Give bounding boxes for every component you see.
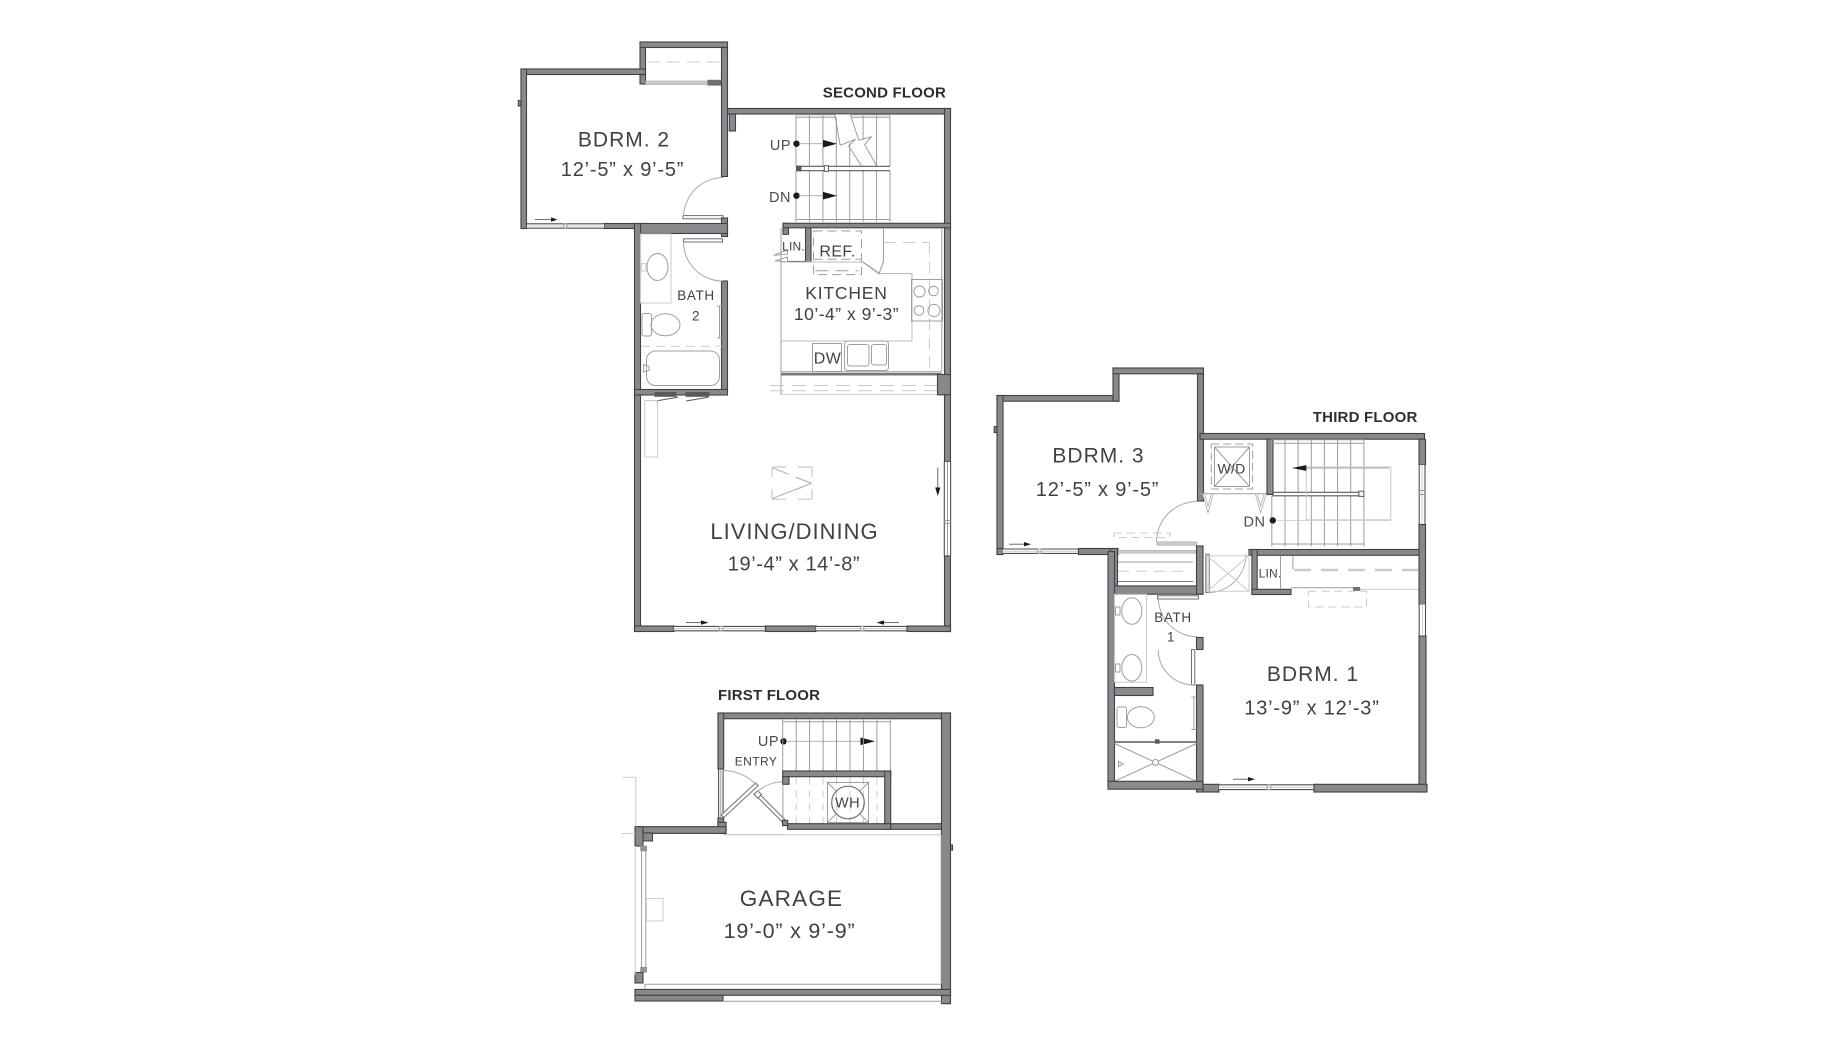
svg-text:10’-4” x 9’-3”: 10’-4” x 9’-3”	[794, 304, 899, 324]
svg-text:UP: UP	[758, 734, 779, 750]
svg-text:GARAGE: GARAGE	[740, 886, 843, 911]
svg-text:SECOND FLOOR: SECOND FLOOR	[823, 85, 946, 102]
svg-text:12’-5” x 9’-5”: 12’-5” x 9’-5”	[1036, 479, 1159, 501]
svg-text:WH: WH	[835, 796, 860, 812]
svg-text:19’-0” x 9’-9”: 19’-0” x 9’-9”	[724, 919, 856, 943]
svg-text:19’-4” x 14’-8”: 19’-4” x 14’-8”	[728, 554, 860, 576]
svg-text:BATH: BATH	[677, 288, 714, 303]
svg-text:BATH: BATH	[1154, 610, 1191, 625]
svg-text:2: 2	[692, 309, 700, 324]
svg-text:DW: DW	[814, 351, 842, 368]
svg-text:REF.: REF.	[819, 244, 855, 261]
svg-text:DN: DN	[769, 190, 791, 206]
svg-text:BDRM. 3: BDRM. 3	[1052, 445, 1144, 468]
svg-text:1: 1	[1167, 630, 1175, 645]
svg-text:THIRD FLOOR: THIRD FLOOR	[1313, 409, 1418, 426]
svg-text:LIVING/DINING: LIVING/DINING	[710, 519, 878, 544]
svg-text:KITCHEN: KITCHEN	[805, 283, 887, 303]
svg-text:LIN.: LIN.	[782, 240, 805, 254]
svg-text:UP: UP	[770, 138, 791, 154]
svg-text:DN: DN	[1244, 515, 1266, 531]
svg-text:FIRST FLOOR: FIRST FLOOR	[718, 687, 820, 704]
svg-text:BDRM. 2: BDRM. 2	[578, 129, 670, 152]
svg-text:12’-5” x 9’-5”: 12’-5” x 9’-5”	[561, 159, 684, 181]
svg-text:BDRM. 1: BDRM. 1	[1267, 663, 1359, 686]
svg-text:13’-9” x 12’-3”: 13’-9” x 12’-3”	[1244, 698, 1379, 720]
svg-text:W/D: W/D	[1217, 461, 1245, 477]
svg-text:LIN.: LIN.	[1259, 567, 1282, 581]
svg-text:ENTRY: ENTRY	[735, 755, 777, 769]
